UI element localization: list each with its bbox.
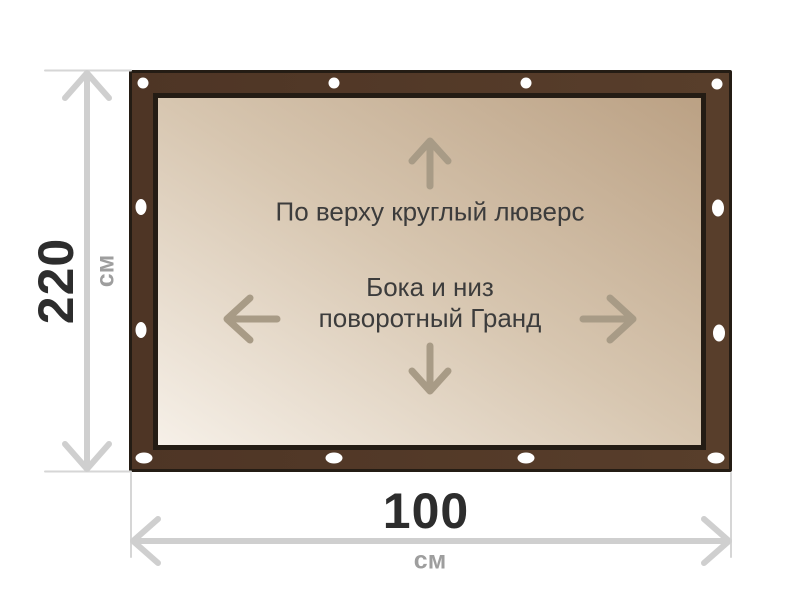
grommet-icon [329,78,340,89]
grommet-icon [326,453,343,464]
grommet-icon [136,199,147,215]
grommet-icon [713,325,725,342]
grommet-icon [712,79,723,90]
banner-size-diagram: По верху круглый люверс Бока и низ повор… [0,0,800,600]
width-unit: см [414,547,446,576]
banner-frame [129,70,732,472]
grommet-icon [712,200,724,217]
grommet-icon [136,453,153,464]
height-unit: см [92,255,121,287]
grommet-icon [138,78,149,89]
grommet-icon [521,78,532,89]
grommet-icon [518,453,535,464]
grommet-icon [136,322,147,338]
top-edge-note: По верху круглый люверс [276,197,585,228]
grommet-icon [708,453,725,464]
width-value: 100 [383,482,469,540]
center-note-line1: Бока и низ [319,272,542,303]
center-note-line2: поворотный Гранд [319,303,542,334]
height-value: 220 [27,238,85,324]
center-note: Бока и низ поворотный Гранд [319,272,542,334]
